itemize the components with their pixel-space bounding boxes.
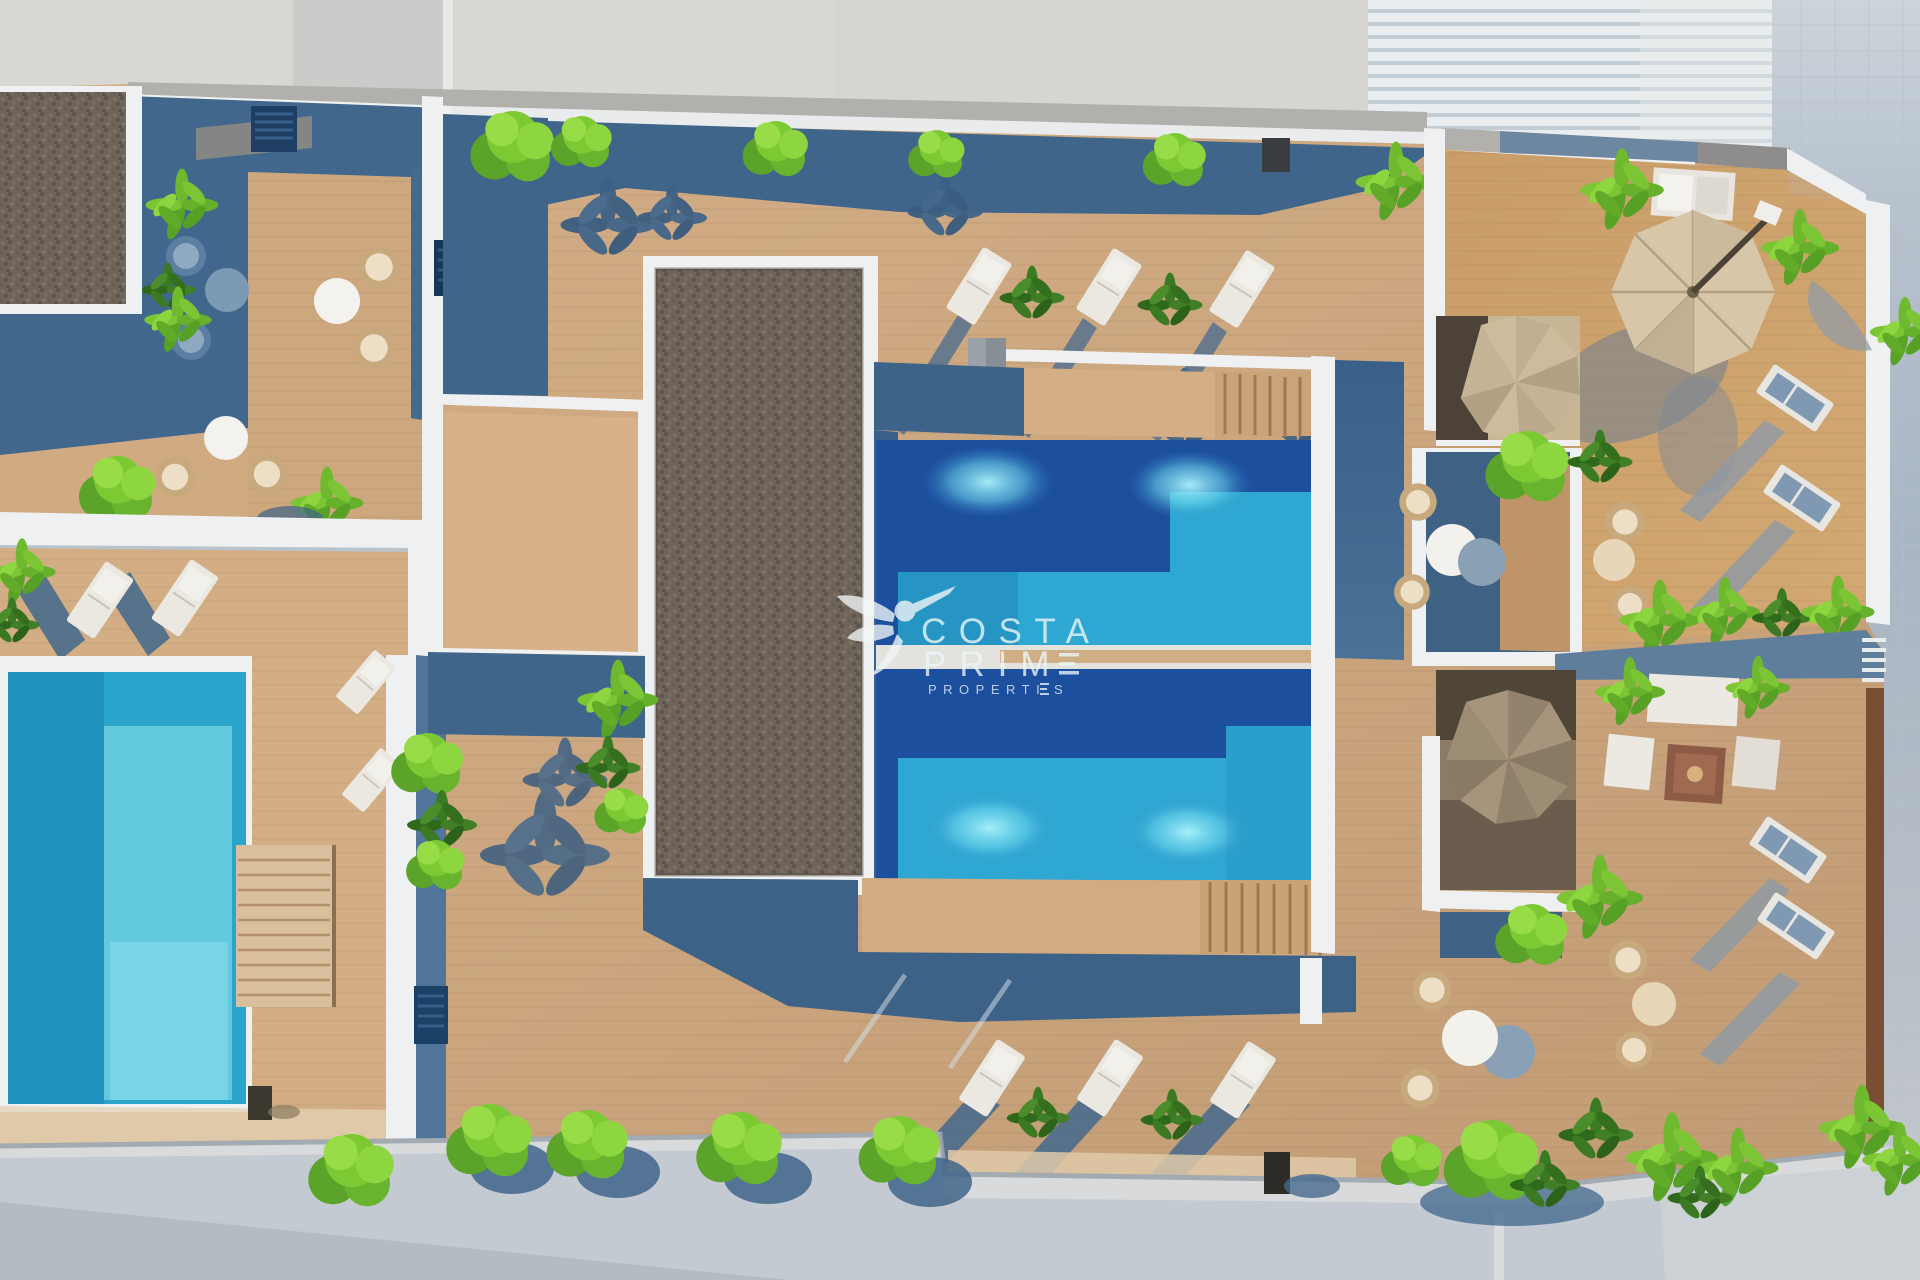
svg-text:PRIM: PRIM xyxy=(923,645,1063,684)
svg-text:S: S xyxy=(1054,682,1069,697)
svg-text:PROPERTI: PROPERTI xyxy=(928,682,1046,697)
